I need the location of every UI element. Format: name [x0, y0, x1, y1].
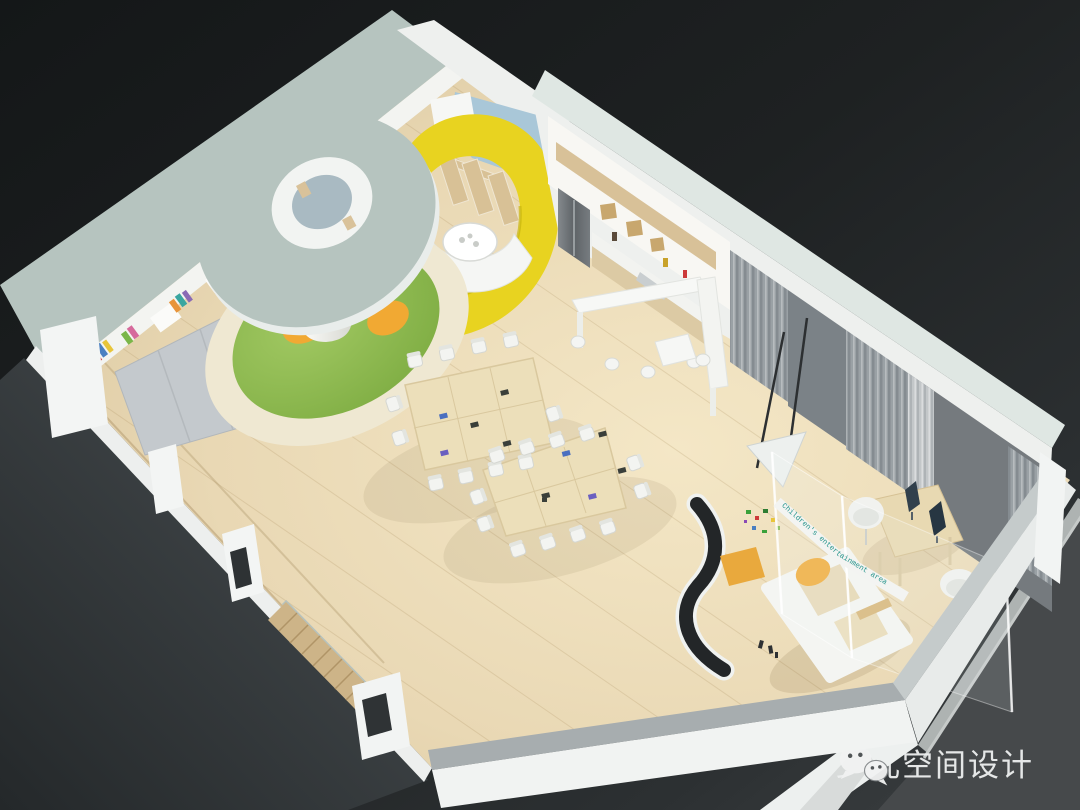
bar-stool: [605, 358, 619, 370]
reception-table: [443, 223, 497, 261]
wall-column: [40, 316, 108, 438]
bar-stool: [571, 336, 585, 348]
small-table-chair: [696, 354, 710, 366]
small-table-chair: [641, 366, 655, 378]
watermark: 少儿空间设计: [836, 740, 1034, 785]
scene-svg: Children's entertainment area: [0, 0, 1080, 810]
wechat-icon: [836, 740, 894, 792]
rendered-image: Children's entertainment area: [0, 0, 1080, 810]
